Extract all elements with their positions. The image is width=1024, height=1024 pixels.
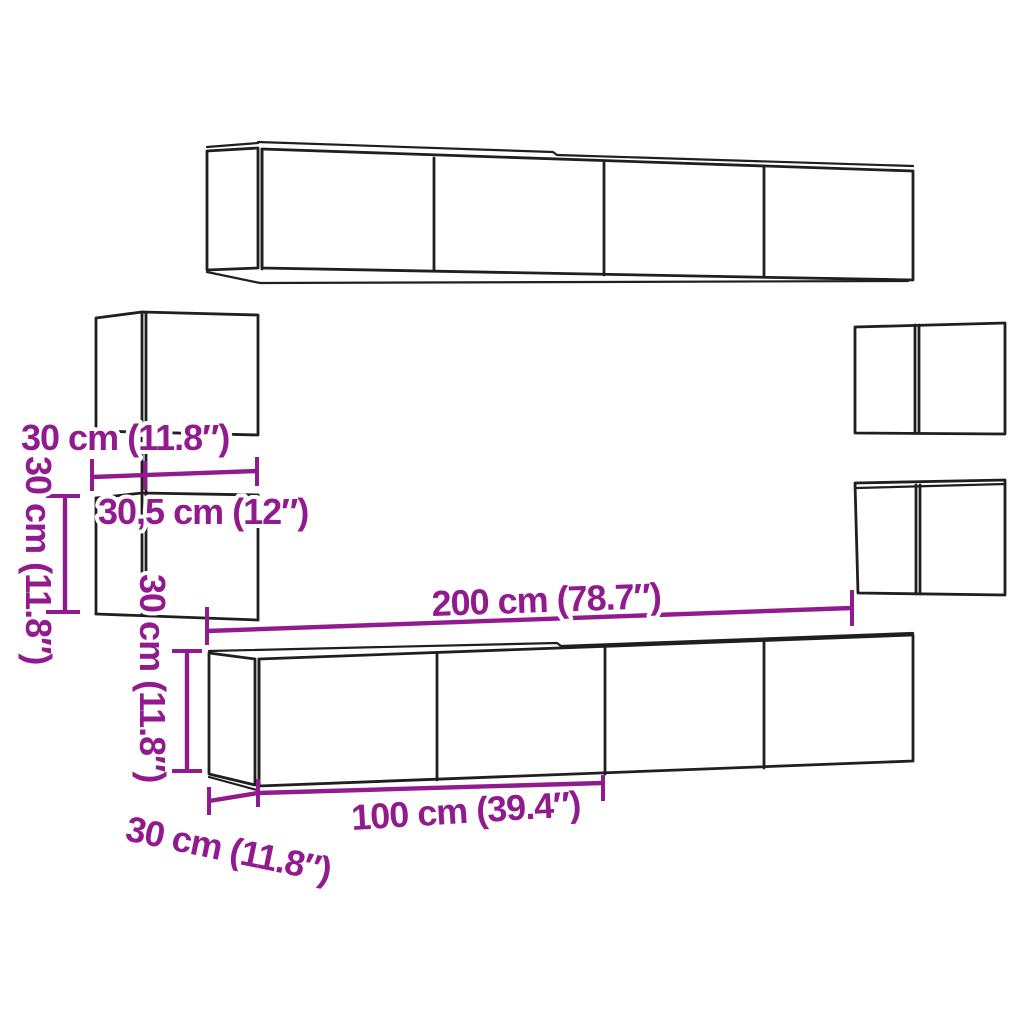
product-dimension-diagram: 30 cm (11.8″) 30,5 cm (12″) 30 cm (11.8″… [0, 0, 1024, 1024]
right-cabinet-2-top-band [857, 484, 1005, 488]
label-bench-width: 200 cm (78.7″) [431, 575, 662, 624]
top-cabinet-top-band [258, 142, 913, 166]
top-wall-cabinet [207, 142, 913, 283]
bench-side-panel [209, 653, 255, 785]
upper-left-wall-cabinet [96, 312, 258, 614]
bench-front-panel [259, 635, 913, 786]
diagram-canvas: 30 cm (11.8″) 30,5 cm (12″) 30 cm (11.8″… [0, 0, 1024, 1024]
label-bench-depth: 30 cm (11.8″) [122, 808, 334, 891]
label-lower-left-height: 30 cm (11.8″) [18, 456, 59, 664]
lower-left-cabinet-bottom-edge [96, 614, 258, 620]
right-wall-cabinet-1 [855, 323, 1005, 434]
right-wall-cabinet-2 [855, 480, 1005, 595]
bench-depth-dimension-line [209, 793, 258, 801]
top-cabinet-front-panel [262, 149, 913, 280]
right-cabinet-1-outline [855, 323, 1005, 434]
label-upper-left-depth: 30 cm (11.8″) [21, 417, 229, 458]
top-cabinet-side-panel [207, 148, 258, 270]
label-upper-left-width: 30,5 cm (12″) [98, 491, 308, 532]
dimension-labels: 30 cm (11.8″) 30,5 cm (12″) 30 cm (11.8″… [18, 417, 662, 890]
bottom-tv-bench [209, 633, 913, 790]
top-cabinet-side-top-band [207, 143, 258, 147]
label-bench-height: 30 cm (11.8″) [132, 574, 173, 782]
left-width-dimension-line [92, 471, 257, 477]
right-cabinet-2-outline [855, 480, 1005, 595]
